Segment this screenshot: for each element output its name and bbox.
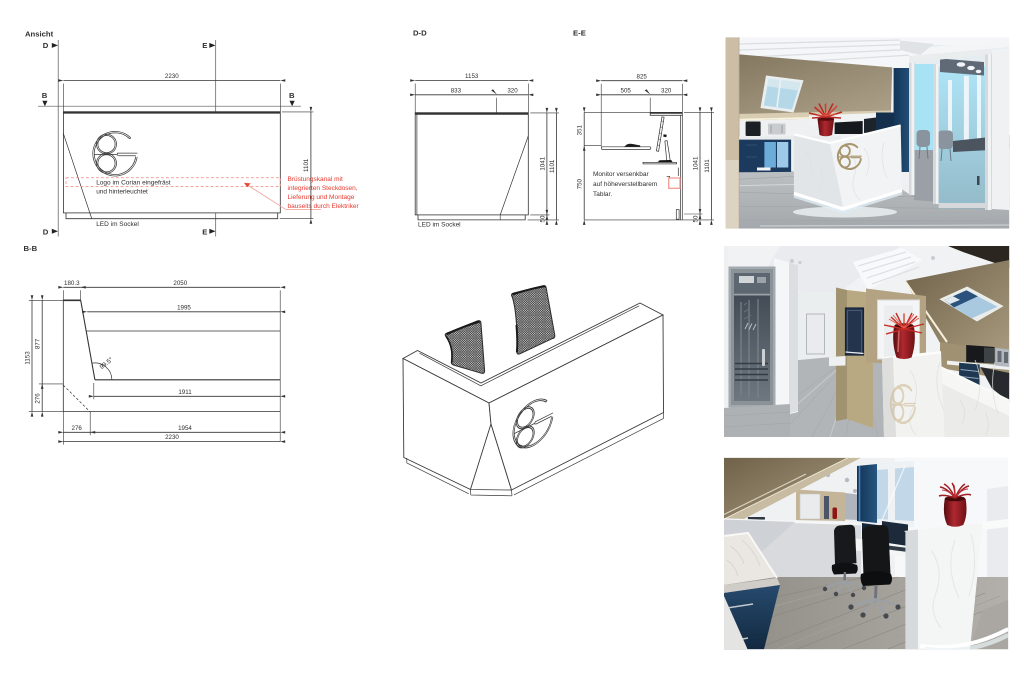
svg-text:bauseits durch Elektriker: bauseits durch Elektriker [288, 203, 360, 210]
svg-text:D: D [43, 41, 49, 50]
svg-text:E: E [202, 227, 207, 236]
svg-text:1041: 1041 [693, 156, 700, 170]
svg-text:2230: 2230 [165, 73, 179, 80]
svg-text:1153: 1153 [465, 73, 479, 80]
svg-text:877: 877 [35, 338, 42, 349]
svg-text:825: 825 [637, 73, 648, 80]
svg-text:833: 833 [451, 87, 462, 94]
svg-text:1911: 1911 [178, 389, 192, 396]
svg-text:LED im Sockel: LED im Sockel [418, 221, 461, 228]
svg-text:2050: 2050 [173, 280, 187, 287]
svg-text:276: 276 [72, 425, 83, 432]
svg-text:1101: 1101 [303, 158, 310, 172]
svg-text:integrierten Steckdosen,: integrierten Steckdosen, [288, 185, 358, 192]
svg-text:Ansicht: Ansicht [25, 30, 54, 39]
svg-text:1153: 1153 [25, 351, 32, 365]
svg-text:B: B [289, 91, 295, 100]
svg-text:Lieferung und Montage: Lieferung und Montage [288, 194, 355, 201]
svg-text:180.3: 180.3 [64, 280, 80, 287]
svg-text:B-B: B-B [24, 244, 38, 253]
svg-text:276: 276 [35, 393, 42, 404]
svg-text:50: 50 [540, 215, 547, 222]
svg-text:320: 320 [507, 87, 518, 94]
svg-text:2230: 2230 [165, 434, 179, 441]
svg-text:LED im Sockel: LED im Sockel [96, 221, 139, 228]
svg-text:1041: 1041 [539, 156, 546, 170]
svg-text:1101: 1101 [549, 159, 556, 173]
svg-text:320: 320 [661, 87, 672, 94]
svg-text:D: D [43, 227, 49, 236]
svg-text:und hinterleuchtet: und hinterleuchtet [96, 189, 148, 196]
svg-text:E: E [202, 41, 207, 50]
svg-text:1101: 1101 [704, 159, 711, 173]
svg-text:50: 50 [693, 215, 700, 222]
svg-text:E-E: E-E [573, 28, 586, 37]
svg-text:auf höheverstellbarem: auf höheverstellbarem [593, 181, 657, 188]
svg-text:351: 351 [577, 124, 584, 135]
svg-text:Tablar.: Tablar. [593, 191, 612, 198]
svg-text:Logo im Corian eingefräst: Logo im Corian eingefräst [96, 180, 171, 187]
svg-text:B: B [42, 91, 48, 100]
svg-text:1954: 1954 [178, 425, 192, 432]
svg-text:Brüstungskanal mit: Brüstungskanal mit [288, 176, 343, 183]
svg-text:750: 750 [577, 178, 584, 189]
svg-text:Monitor versenkbar: Monitor versenkbar [593, 171, 649, 178]
svg-text:99.5°: 99.5° [98, 355, 115, 371]
svg-text:505: 505 [621, 87, 632, 94]
svg-text:1995: 1995 [177, 304, 191, 311]
svg-text:D-D: D-D [413, 28, 427, 37]
